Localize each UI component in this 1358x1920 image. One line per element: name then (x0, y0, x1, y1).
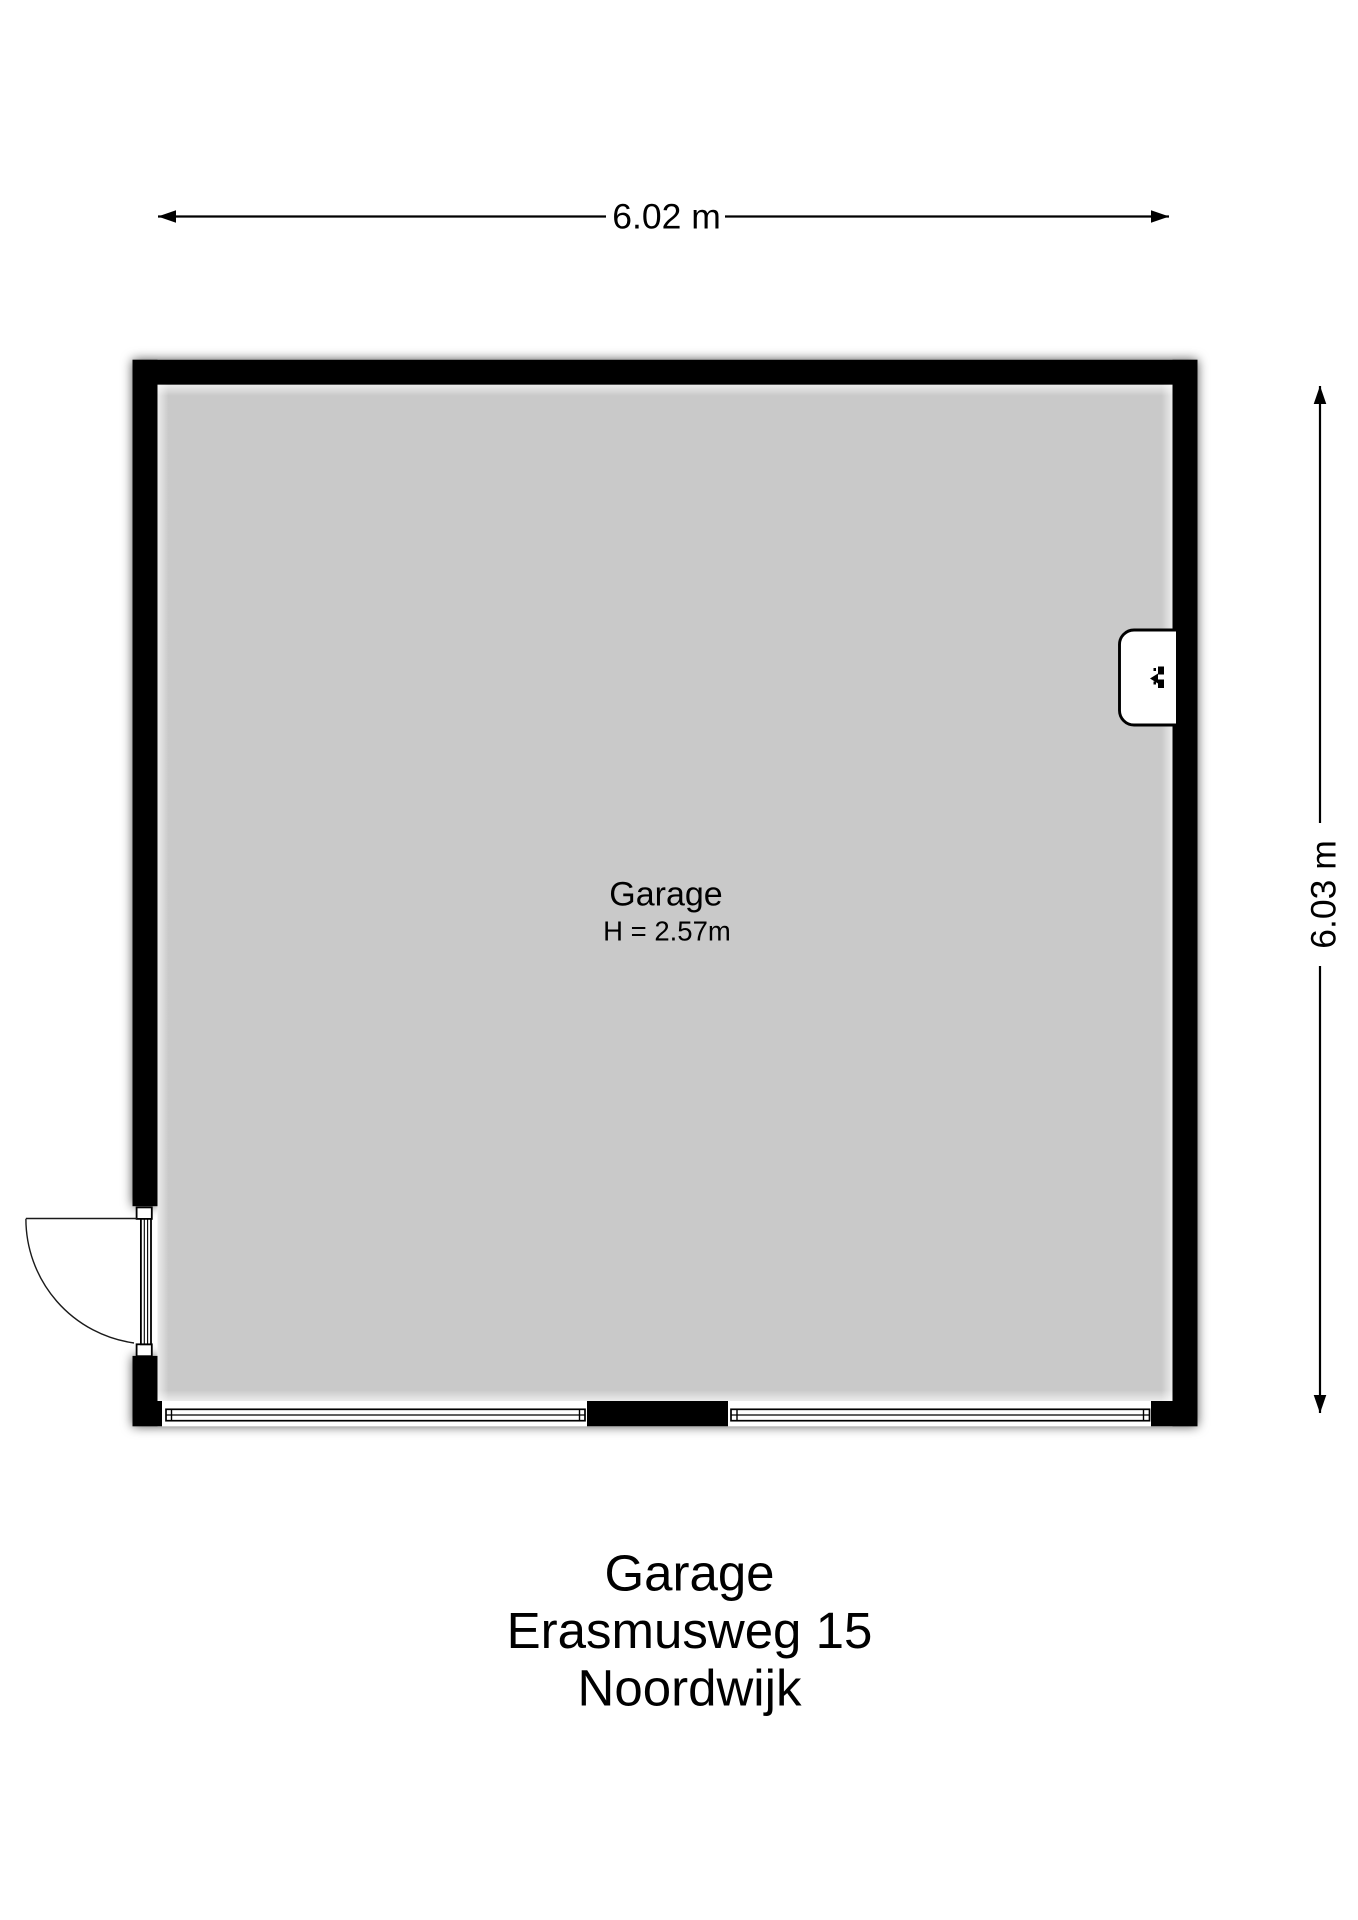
svg-text:6.03 m: 6.03 m (1304, 840, 1344, 949)
svg-text:Erasmusweg 15: Erasmusweg 15 (507, 1602, 873, 1659)
svg-text:H = 2.57m: H = 2.57m (603, 915, 731, 946)
svg-text:Garage: Garage (604, 1545, 774, 1602)
svg-text:Noordwijk: Noordwijk (578, 1660, 802, 1717)
svg-text:Garage: Garage (609, 876, 722, 914)
svg-text:6.02 m: 6.02 m (612, 196, 721, 236)
